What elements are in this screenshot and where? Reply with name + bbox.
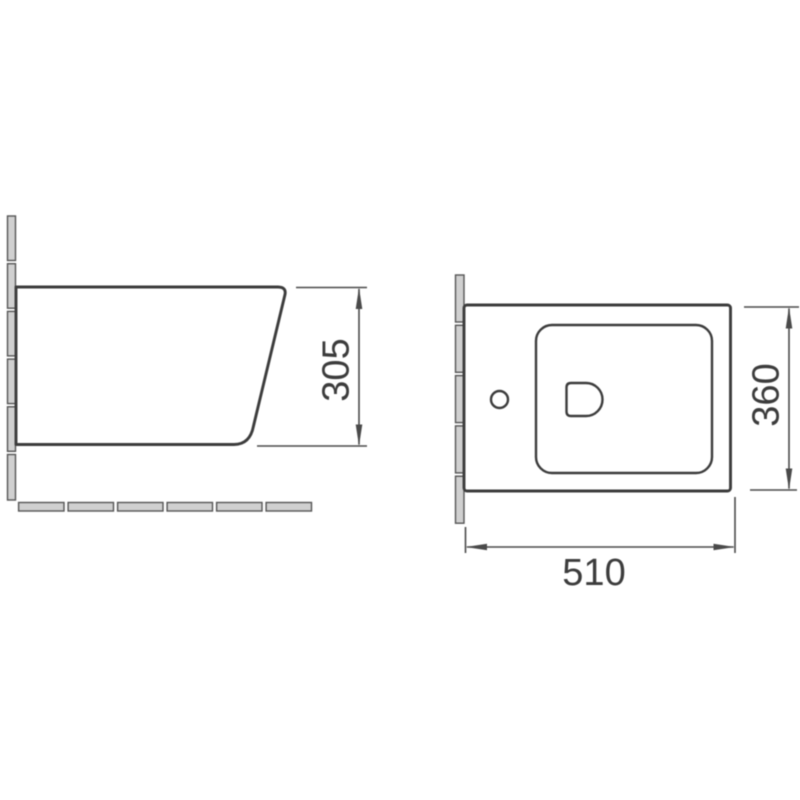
svg-text:305: 305 [316,338,358,401]
svg-text:360: 360 [746,363,788,426]
svg-text:510: 510 [562,552,625,594]
